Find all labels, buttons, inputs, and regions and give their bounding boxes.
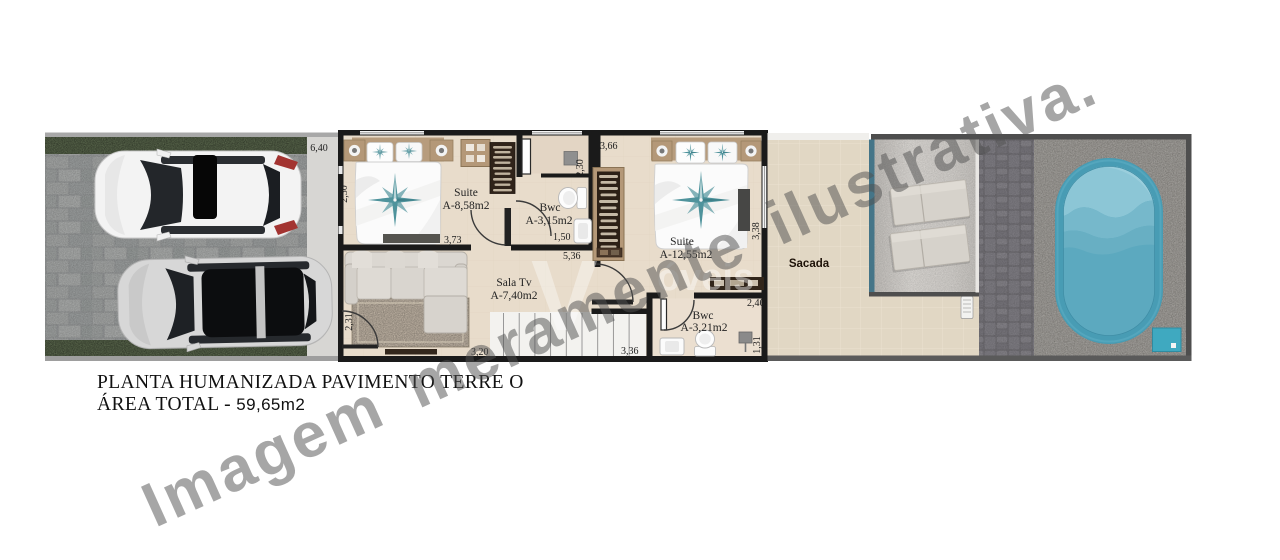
svg-text:2,30: 2,30 — [575, 159, 586, 177]
svg-text:Sala Tv: Sala Tv — [496, 277, 531, 289]
svg-text:2,31: 2,31 — [344, 313, 355, 331]
svg-text:Sacada: Sacada — [789, 258, 830, 270]
svg-text:3,73: 3,73 — [444, 235, 462, 246]
svg-text:2,46: 2,46 — [747, 298, 765, 309]
svg-text:Bwc: Bwc — [692, 310, 713, 322]
svg-text:A-3,15m2: A-3,15m2 — [526, 215, 573, 227]
svg-text:3,36: 3,36 — [621, 346, 639, 357]
svg-text:ÁREA TOTAL - 59,65m2: ÁREA TOTAL - 59,65m2 — [97, 393, 305, 415]
svg-text:3,66: 3,66 — [600, 141, 618, 152]
svg-text:2,30: 2,30 — [339, 185, 350, 203]
svg-text:6,40: 6,40 — [310, 143, 328, 154]
svg-text:Bwc: Bwc — [539, 202, 560, 214]
svg-text:Suite: Suite — [454, 187, 478, 199]
svg-text:1,31: 1,31 — [752, 336, 763, 354]
svg-text:A-3,21m2: A-3,21m2 — [681, 322, 728, 334]
svg-text:A-8,58m2: A-8,58m2 — [443, 200, 490, 212]
